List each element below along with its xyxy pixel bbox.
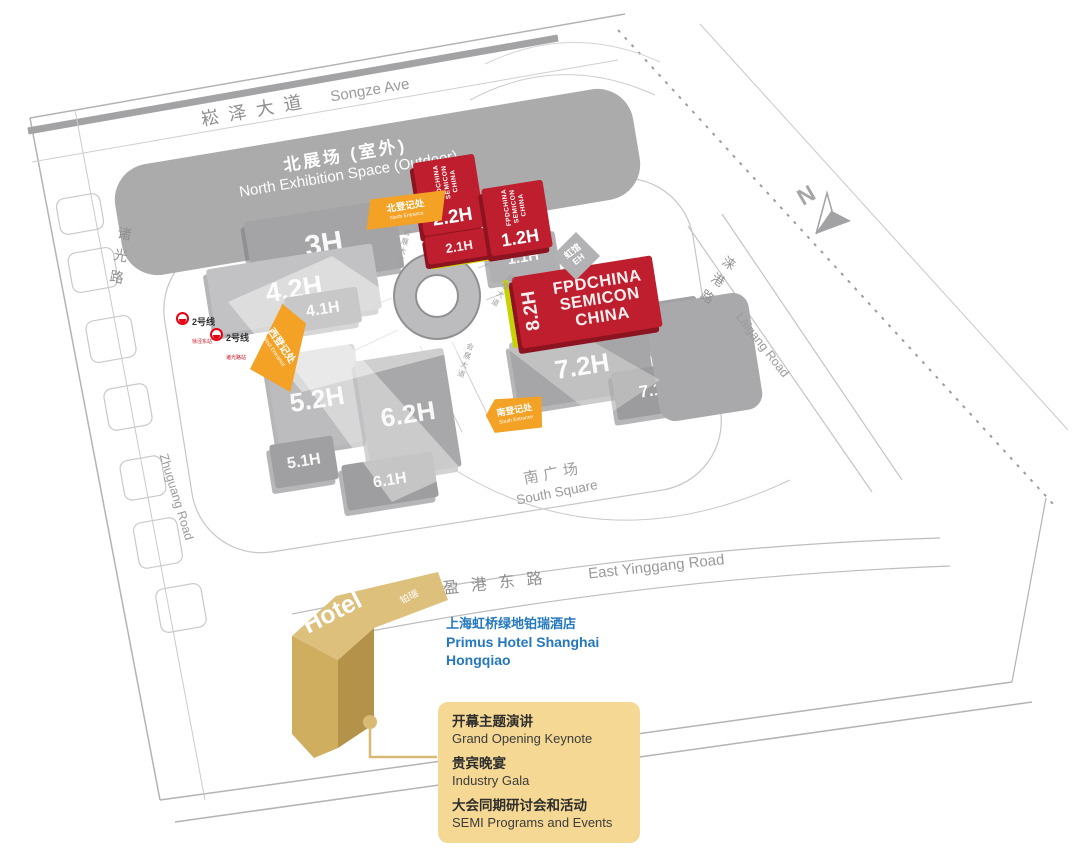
legend-item: 开幕主题演讲 Grand Opening Keynote [452, 714, 626, 747]
legend-item: 贵宾晚宴 Industry Gala [452, 756, 626, 789]
hotel-callout-line [370, 729, 437, 757]
event-legend: 开幕主题演讲 Grand Opening Keynote 贵宾晚宴 Indust… [438, 702, 640, 843]
hotel-callout-dot [363, 715, 377, 729]
legend-item-en: SEMI Programs and Events [452, 815, 626, 831]
legend-item: 大会同期研讨会和活动 SEMI Programs and Events [452, 798, 626, 831]
legend-item-en: Grand Opening Keynote [452, 731, 626, 747]
venue-map: 北展场 (室外) North Exhibition Space (Outdoor… [0, 0, 1080, 851]
legend-item-zh: 开幕主题演讲 [452, 714, 626, 731]
legend-item-zh: 贵宾晚宴 [452, 756, 626, 773]
legend-item-zh: 大会同期研讨会和活动 [452, 798, 626, 815]
legend-item-en: Industry Gala [452, 773, 626, 789]
